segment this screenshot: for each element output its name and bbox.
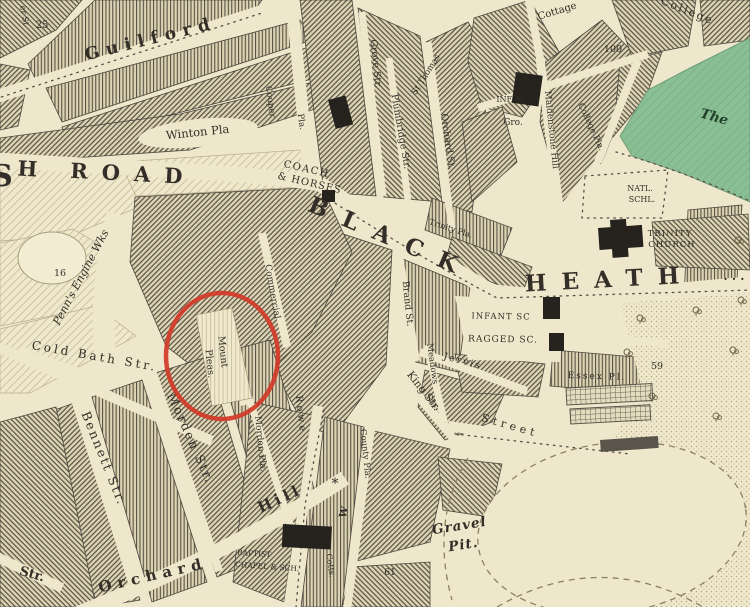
map-label-59: 59 <box>651 361 663 372</box>
map-viewport: 25Guilforder StSHROADWinton PlaCouperPla… <box>0 0 750 607</box>
map-label-16: 16 <box>54 268 66 279</box>
public-building <box>543 297 560 319</box>
map-label-ragged-sc: RAGGED SC. <box>468 334 538 345</box>
map-label-schl: SCHL. <box>629 195 655 204</box>
map-label-infant-sc: INFANT SC <box>471 311 530 322</box>
map-label-church: CHURCH <box>648 240 695 250</box>
public-building <box>282 524 332 550</box>
trinity-church-building <box>610 219 629 258</box>
map-label-h: H <box>17 156 38 182</box>
map-label-inf-s: INF. S. <box>496 95 523 104</box>
school-yard <box>582 170 668 218</box>
historical-map-canvas[interactable]: 25Guilforder StSHROADWinton PlaCouperPla… <box>0 0 750 607</box>
map-label-trinity: TRINITY <box>648 229 693 239</box>
map-label-essex-pl: Essex Pl. <box>567 371 626 383</box>
map-label-61: 61 <box>384 568 395 578</box>
map-label-mark: * <box>332 476 339 492</box>
map-label-natl: NATL. <box>627 184 653 193</box>
map-label-s: S <box>0 159 13 194</box>
map-label-100: 100 <box>604 44 622 55</box>
map-label-25: 25 <box>36 20 49 31</box>
map-label-gro: Gro. <box>503 118 523 128</box>
map-label-mark: . . . <box>724 269 745 283</box>
public-building <box>549 333 564 351</box>
